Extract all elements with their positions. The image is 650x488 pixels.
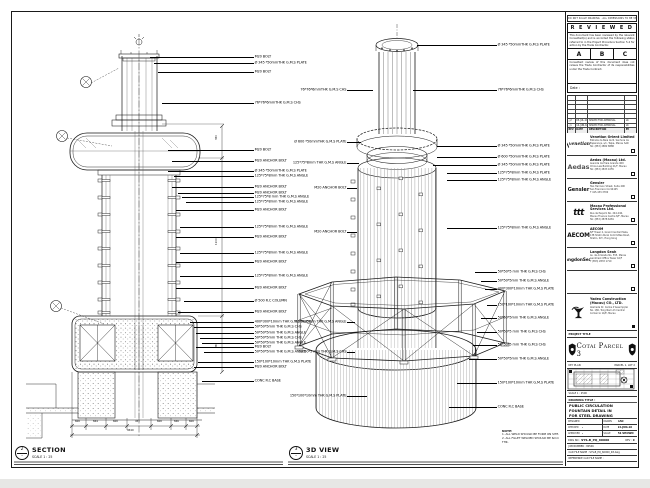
contractor-logo bbox=[567, 294, 590, 330]
dimension-text: 4540 bbox=[127, 430, 134, 433]
revision-cell: 14-JUN-10 bbox=[576, 124, 589, 128]
revision-cell bbox=[588, 105, 625, 109]
leader-text: 50*50*5 mm THK G.M.S CHS bbox=[498, 329, 546, 333]
reviewed-paragraph: This document has been reviewed by the r… bbox=[568, 33, 636, 48]
aedas-logo-text: Aedas bbox=[568, 163, 590, 171]
section-view-title: 2 - SECTION SCALE 1 : 25 bbox=[15, 446, 66, 460]
field-value: - bbox=[582, 431, 602, 436]
leader-line bbox=[485, 287, 497, 290]
aecom-logo-text: AECOM bbox=[567, 233, 589, 239]
leader-line bbox=[347, 350, 355, 353]
consultant-row: AedasAedas (Macau) Ltd.Avenida da Praia … bbox=[567, 156, 637, 179]
leader-label: Ø 345 *50mmTHK G.M.S PLATE bbox=[416, 43, 550, 48]
leader-label: 125*75*8mm THK G.M.S ANGLE bbox=[446, 178, 551, 183]
revision-cell: 05-JUL-10 bbox=[576, 119, 589, 123]
signature-fields: DESIGNED DRAWNCAD CHECKED- DATE14-JUN-10… bbox=[567, 419, 637, 437]
detail-number: 3 bbox=[291, 447, 301, 454]
revision-cell bbox=[625, 96, 636, 100]
key-plan bbox=[567, 368, 637, 391]
leader-label: 150*100*10mm THK G.M.S PLATE bbox=[456, 381, 554, 386]
leader-line bbox=[347, 186, 357, 189]
dimension-text: 450 bbox=[135, 421, 140, 424]
reviewed-title: R E V I E W E D bbox=[568, 24, 636, 33]
rev-value: C bbox=[633, 438, 637, 442]
leader-label: 50*50*5 mm THK G.M.S CHS bbox=[474, 270, 546, 275]
leader-label: 50*50*5 mm THK G.M.S CHS bbox=[472, 343, 546, 348]
consultant-address-line: Tel: (853) 2833 1055 bbox=[590, 168, 637, 171]
detail-sheet: - bbox=[21, 454, 23, 460]
leader-label: 50*50*5mm THK G.M.S ANGLE bbox=[480, 316, 549, 321]
leader-label: Ø 600 *50mmTHK G.M.S PLATE bbox=[436, 155, 550, 160]
gensler-logo: Gensler bbox=[567, 179, 590, 201]
leader-label: 76*76*6mmTHK G.M.S CHS bbox=[412, 88, 544, 93]
leader-text: 125*75*8mm THK G.M.S ANGLE bbox=[498, 177, 552, 181]
leader-label: 150*100*10mm THK G.M.S PLATE bbox=[486, 303, 554, 308]
leader-line bbox=[347, 230, 357, 233]
leader-line bbox=[457, 381, 497, 384]
revision-cell bbox=[588, 96, 625, 100]
dimension-text: 600 bbox=[113, 421, 118, 424]
dimension-text: 844 bbox=[93, 421, 98, 424]
leader-line bbox=[347, 161, 359, 164]
leader-line bbox=[469, 357, 497, 360]
field-label: DATE bbox=[603, 425, 618, 430]
revision-cell bbox=[568, 96, 576, 100]
leader-label: CONC R.C BASE bbox=[448, 405, 524, 410]
leader-label: M20 ANCHOR BOLT bbox=[314, 230, 358, 235]
drawing-title: PUBLIC CIRCULATION FOUNTAIN DETAIL IN FO… bbox=[567, 403, 637, 419]
field-label: CHECKED bbox=[567, 425, 582, 430]
leader-text: 76*76*6mmTHK G.M.S CHS bbox=[300, 87, 346, 91]
contractor-address-line: Comércio 14/E, Macau bbox=[590, 312, 637, 315]
consultant-address-line: T 415.433.3700 bbox=[590, 191, 637, 194]
consultant-info: Langdon SeahAv. da Amizade No. 555, Maca… bbox=[590, 248, 637, 270]
iso-view-title: 3 - 3D VIEW SCALE 1 : 25 bbox=[289, 446, 339, 460]
revision-cell bbox=[576, 114, 589, 118]
rev-label: REV : bbox=[624, 439, 632, 442]
reference-file: REFERENCE CAD FILE NAME : bbox=[567, 456, 637, 462]
consultant-row: venetianVenetian Orient LimitedEstrada d… bbox=[567, 133, 637, 156]
leader-label: Ø 345 *50mmTHK G.M.S PLATE bbox=[432, 163, 550, 168]
leader-line bbox=[347, 88, 373, 91]
leader-label: 125*75*8mm THK G.M.S PLATE bbox=[446, 171, 550, 176]
view-scale: SCALE 1 : 25 bbox=[306, 455, 339, 459]
leader-text: 125*75*8mm THK G.M.S ANGLE bbox=[498, 225, 552, 229]
revision-cell: LK bbox=[625, 119, 636, 123]
langdonseah-logo-text: LangdonSeah bbox=[567, 257, 590, 262]
dimension-text: 846 bbox=[174, 421, 179, 424]
venetian-logo: venetian bbox=[567, 133, 590, 155]
consultant-address-line: Shatin, N.T., Hong Kong bbox=[590, 237, 637, 240]
leader-text: 50*50*5mm THK G.M.S ANGLE bbox=[498, 278, 549, 282]
iso-annotations-left: 76*76*6mmTHK G.M.S CHSØ 600 *50mmTHK G.M… bbox=[0, 0, 346, 488]
gensler-logo-text: Gensler bbox=[568, 187, 590, 193]
crane-bird-logo-icon bbox=[571, 305, 586, 320]
venetian-logo-text: venetian bbox=[569, 142, 590, 147]
consultant-info: Aedas (Macau) Ltd.Avenida da Praia Grand… bbox=[590, 156, 637, 178]
status-checkbox bbox=[631, 172, 635, 176]
consultant-address-line: T (853) 2833 1710 bbox=[590, 260, 637, 263]
leader-label: 76*76*6mmTHK G.M.S CHS bbox=[300, 88, 374, 93]
leader-line bbox=[477, 330, 497, 333]
consultant-info: AECOM8/F Tower 2, Grand Central Plaza,13… bbox=[590, 225, 637, 247]
langdonseah-logo: LangdonSeah bbox=[567, 248, 590, 270]
contractor-seal bbox=[632, 325, 636, 329]
consultant-row: LangdonSeahLangdon SeahAv. da Amizade No… bbox=[567, 248, 637, 271]
status-option-b: B bbox=[591, 49, 614, 59]
leader-line bbox=[347, 394, 367, 397]
project-title-band: PROJECT TITLE bbox=[567, 331, 637, 338]
leader-text: Ø 345 *50mmTHK G.M.S PLATE bbox=[498, 162, 550, 166]
dimension-text: 1100 bbox=[216, 238, 219, 245]
leader-line bbox=[437, 144, 497, 147]
leader-text: 125*75*8mm THK G.M.S PLATE bbox=[498, 170, 550, 174]
reviewed-stamp: R E V I E W E D This document has been r… bbox=[567, 23, 637, 93]
revision-table: △205-JUL-10ISSUED FOR APPROVALLK△114-JUN… bbox=[567, 95, 637, 133]
revision-cell bbox=[576, 101, 589, 105]
field-value: 14-JUN-10 bbox=[618, 425, 638, 430]
leader-text: 150*100*10mm THK G.M.S PLATE bbox=[290, 393, 347, 397]
status-options: A B C bbox=[568, 48, 636, 60]
revision-cell bbox=[625, 105, 636, 109]
revision-cell bbox=[568, 114, 576, 118]
leader-text: Ø 600 *50mmTHK G.M.S PLATE bbox=[294, 139, 346, 143]
leader-text: 400*300*10mm THK G.M.S PLATE bbox=[498, 286, 555, 290]
field-value: CAD bbox=[618, 419, 638, 424]
key-plan-drawing bbox=[567, 368, 635, 390]
leader-text: Ø 600 *50mmTHK G.M.S PLATE bbox=[498, 154, 550, 158]
leader-line bbox=[433, 163, 497, 166]
consultant-address-line: Tel: (853) 2882 8888 bbox=[590, 145, 637, 148]
leader-label: 50*50*5mm THK G.M.S ANGLE bbox=[480, 279, 549, 284]
leader-text: 150*100*10mm THK G.M.S PLATE bbox=[498, 380, 555, 384]
iso-detail-bubble: 3 - bbox=[289, 446, 303, 460]
revision-cell bbox=[588, 101, 625, 105]
aecom-logo: AECOM bbox=[567, 225, 590, 247]
leader-line bbox=[347, 320, 355, 323]
leader-text: 50*50*5mm THK G.M.S ANGLE bbox=[498, 356, 549, 360]
revision-cell bbox=[625, 114, 636, 118]
consultant-row: AECOMAECOM8/F Tower 2, Grand Central Pla… bbox=[567, 225, 637, 248]
mps-logo-text: ttt bbox=[573, 208, 583, 218]
leader-label: 150*100*10mm THK G.M.S PLATE bbox=[290, 394, 368, 399]
leader-line bbox=[347, 140, 361, 143]
leader-line bbox=[487, 303, 497, 306]
contractor-box: Yadea Construction (Macau) CO., LTD. Ala… bbox=[567, 294, 637, 331]
leader-label: 125*75*8mm THK G.M.S ANGLE bbox=[293, 161, 360, 166]
leader-line bbox=[481, 279, 497, 282]
leader-text: 150*100*10mm THK G.M.S PLATE bbox=[498, 302, 555, 306]
section-detail-bubble: 2 - bbox=[15, 446, 29, 460]
field-label: APPROVED bbox=[567, 431, 582, 436]
project-title: Cotai Parcel 3 bbox=[576, 342, 627, 358]
leader-line bbox=[481, 316, 497, 319]
view-scale: SCALE 1 : 25 bbox=[32, 455, 66, 459]
drawing-sheet-page: M20 BOLTØ 345 *50mmTHK G.M.S PLATEM20 BO… bbox=[0, 0, 650, 488]
field-label: DRAWN bbox=[603, 419, 618, 424]
status-checkbox bbox=[631, 241, 635, 245]
emblem-icon bbox=[568, 343, 576, 356]
dimension-text: 350 bbox=[216, 135, 219, 140]
leader-text: M20 ANCHOR BOLT bbox=[314, 229, 346, 233]
revision-cell bbox=[625, 101, 636, 105]
status-checkbox bbox=[631, 218, 635, 222]
title-block: DO NOT SCALE DRAWING · ALL DIMENSIONS TO… bbox=[566, 12, 638, 466]
project-title-label: PROJECT TITLE bbox=[569, 331, 591, 337]
leader-label: 50*50*5mm THK G.M.S ANGLE bbox=[468, 357, 549, 362]
leader-text: 125*75*8mm THK G.M.S ANGLE bbox=[293, 160, 347, 164]
field-label: SCALE bbox=[603, 431, 618, 436]
field-value: - bbox=[582, 425, 602, 430]
dwg-no: SYS-B_PQ_60000 bbox=[581, 438, 609, 442]
status-checkbox bbox=[631, 195, 635, 199]
detail-sheet: - bbox=[295, 454, 297, 460]
revision-cell bbox=[588, 110, 625, 114]
leader-line bbox=[413, 88, 497, 91]
view-name: SECTION bbox=[32, 446, 66, 454]
consultant-row: tttMacau Professional Services Ltd.Rua d… bbox=[567, 202, 637, 225]
revision-cell bbox=[576, 110, 589, 114]
detail-number: 2 bbox=[17, 447, 27, 454]
leader-line bbox=[473, 343, 497, 346]
note-line: 2. ALL FILLET WELDED SHOULD BE 6mm THK. bbox=[502, 437, 564, 445]
key-plan-scale: SCALE 1 : 2500 bbox=[569, 391, 587, 396]
leader-text: CONC R.C BASE bbox=[498, 404, 524, 408]
revision-cell: △2 bbox=[568, 119, 576, 123]
consultant-info: Macau Professional Services Ltd.Rua de P… bbox=[590, 202, 637, 224]
revision-cell bbox=[588, 114, 625, 118]
consultant-address-line: Tel: (853) 2878 6281 bbox=[590, 218, 637, 221]
leader-line bbox=[417, 43, 497, 46]
revision-cell: △1 bbox=[568, 124, 576, 128]
disclaimer-strip: DO NOT SCALE DRAWING · ALL DIMENSIONS TO… bbox=[567, 15, 637, 22]
revision-cell bbox=[568, 110, 576, 114]
revision-cell bbox=[576, 105, 589, 109]
leader-text: Ø 345 *50mmTHK G.M.S PLATE bbox=[498, 42, 550, 46]
dwg-number-row: DWG NO : SYS-B_PQ_60000 REV : C bbox=[567, 437, 637, 444]
leader-text: 50*50*5mm THK G.M.S ANGLE bbox=[295, 319, 346, 323]
revision-cell: ISSUED FOR APPROVAL bbox=[588, 119, 625, 123]
field-value: AS SHOWN bbox=[618, 431, 638, 436]
status-checkbox bbox=[631, 264, 635, 268]
leader-line bbox=[437, 155, 497, 158]
dimension-text: 600 bbox=[189, 421, 194, 424]
leader-text: Ø 345 *50mmTHK G.M.S PLATE bbox=[498, 143, 550, 147]
leader-label: Ø 345 *50mmTHK G.M.S PLATE bbox=[436, 144, 550, 149]
leader-line bbox=[447, 178, 497, 181]
revision-cell bbox=[568, 105, 576, 109]
aedas-logo: Aedas bbox=[567, 156, 590, 178]
revision-cell: LK bbox=[625, 124, 636, 128]
leader-text: 76*76*6mmTHK G.M.S CHS bbox=[498, 87, 544, 91]
consultant-name: Macau Professional Services Ltd. bbox=[590, 205, 637, 213]
leader-label: Ø 600 *50mmTHK G.M.S PLATE bbox=[294, 140, 362, 145]
dimension-text: 600 bbox=[75, 421, 80, 424]
leader-label: 50*50*5 mm THK G.M.S CHS bbox=[298, 350, 356, 355]
reviewed-date-field: Date : bbox=[568, 83, 636, 92]
mps-logo: ttt bbox=[567, 202, 590, 224]
leader-line bbox=[447, 171, 497, 174]
view-name: 3D VIEW bbox=[306, 446, 339, 454]
consultant-list: venetianVenetian Orient LimitedEstrada d… bbox=[567, 133, 637, 294]
leader-line bbox=[447, 226, 497, 229]
status-option-c: C bbox=[614, 49, 636, 59]
leader-line bbox=[449, 405, 497, 408]
leader-text: 50*50*5 mm THK G.M.S CHS bbox=[298, 349, 346, 353]
leader-label: 125*75*8mm THK G.M.S ANGLE bbox=[446, 226, 551, 231]
leader-label: 400*300*10mm THK G.M.S PLATE bbox=[484, 287, 554, 292]
consultant-row: GenslerGenslerTwo Harrison Street, Suite… bbox=[567, 179, 637, 202]
reviewed-paragraph-2: Consultant review of this document does … bbox=[568, 60, 636, 72]
project-title-box: Cotai Parcel 3 bbox=[567, 338, 637, 362]
consultant-info: GenslerTwo Harrison Street, Suite 400San… bbox=[590, 179, 637, 201]
revision-cell bbox=[568, 101, 576, 105]
general-notes: NOTE: 1. ALL WELD SHOULD BE FORM ON SITE… bbox=[502, 429, 564, 444]
leader-label: 50*50*5mm THK G.M.S ANGLE bbox=[295, 320, 356, 325]
status-checkbox bbox=[631, 149, 635, 153]
emblem-icon bbox=[628, 343, 636, 356]
consultant-row-empty bbox=[567, 271, 637, 294]
leader-label: 50*50*5 mm THK G.M.S CHS bbox=[476, 330, 546, 335]
field-label: DESIGNED bbox=[567, 419, 582, 424]
status-checkbox bbox=[631, 287, 635, 291]
dwg-no-label: DWG NO : bbox=[567, 439, 581, 442]
revision-cell bbox=[576, 96, 589, 100]
status-option-a: A bbox=[568, 49, 591, 59]
leader-text: 50*50*5 mm THK G.M.S CHS bbox=[498, 342, 546, 346]
dimension-text: 950 bbox=[216, 343, 219, 348]
consultant-info: Venetian Orient LimitedEstrada da Baía d… bbox=[590, 133, 637, 155]
leader-text: 50*50*5 mm THK G.M.S CHS bbox=[498, 269, 546, 273]
leader-text: M20 ANCHOR BOLT bbox=[314, 185, 346, 189]
revision-cell: ISSUED FOR APPROVAL bbox=[588, 124, 625, 128]
leader-line bbox=[475, 270, 497, 273]
leader-label: M20 ANCHOR BOLT bbox=[314, 186, 358, 191]
leader-text: 50*50*5mm THK G.M.S ANGLE bbox=[498, 315, 549, 319]
revision-cell bbox=[625, 110, 636, 114]
field-value bbox=[582, 419, 602, 424]
dimension-text: 600 bbox=[157, 421, 162, 424]
